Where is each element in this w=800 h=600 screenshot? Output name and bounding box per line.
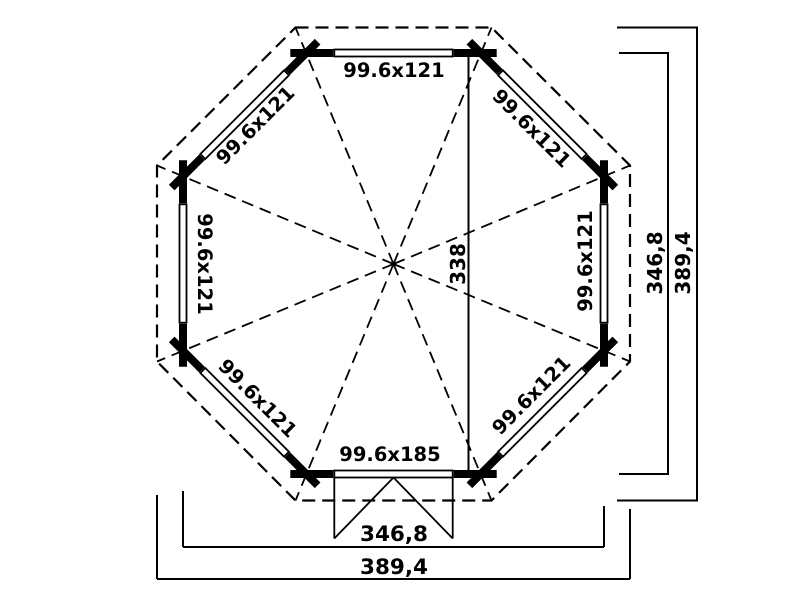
- label-wall-left: 99.6x121: [193, 213, 216, 314]
- ridge-line-left-bottom: [157, 264, 394, 362]
- gazebo-floor-plan-drawing: 99.6x121 99.6x121 99.6x121 99.6x121 99.6…: [0, 0, 800, 600]
- label-wall-right: 99.6x121: [574, 210, 597, 311]
- wall-top: [334, 50, 452, 57]
- labels: 99.6x121 99.6x121 99.6x121 99.6x121 99.6…: [193, 59, 695, 580]
- label-dim-right-inner: 346,8: [643, 231, 667, 294]
- label-wall-top: 99.6x121: [343, 59, 444, 82]
- wall-bottom: [334, 471, 452, 478]
- wall-left: [180, 204, 187, 322]
- wall-right: [601, 204, 608, 322]
- roof-ridge-lines: [157, 28, 630, 501]
- label-center-span: 338: [446, 243, 470, 285]
- label-dim-right-outer: 389,4: [671, 231, 695, 294]
- ridge-line-left-top: [157, 166, 394, 265]
- label-dim-bottom-outer: 389,4: [360, 555, 428, 580]
- dimension-lines: [157, 28, 697, 580]
- label-dim-bottom-inner: 346,8: [360, 522, 428, 547]
- gazebo-floor-plan-page: 99.6x121 99.6x121 99.6x121 99.6x121 99.6…: [0, 0, 800, 600]
- label-wall-top-right: 99.6x121: [488, 84, 576, 172]
- label-wall-bottom: 99.6x185: [339, 443, 440, 466]
- label-wall-top-left: 99.6x121: [211, 81, 299, 169]
